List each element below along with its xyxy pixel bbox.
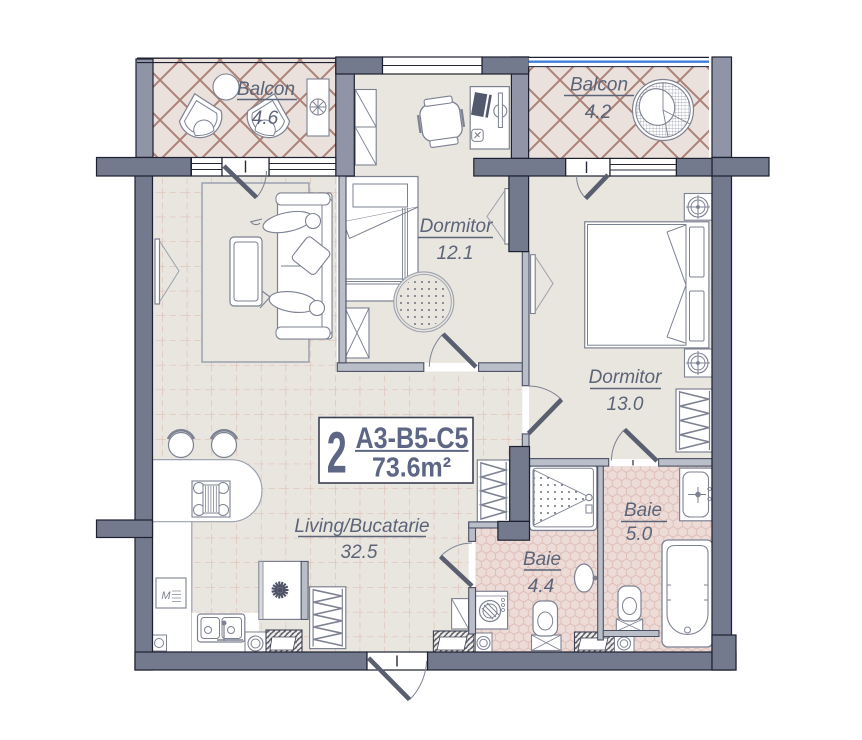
svg-text:M: M bbox=[161, 590, 171, 602]
svg-text:4.2: 4.2 bbox=[585, 102, 612, 123]
svg-text:Dormitor: Dormitor bbox=[589, 367, 663, 388]
svg-text:Baie: Baie bbox=[523, 549, 561, 570]
svg-text:Baie: Baie bbox=[624, 500, 662, 521]
svg-text:Dormitor: Dormitor bbox=[420, 216, 494, 237]
svg-text:4.6: 4.6 bbox=[252, 108, 279, 129]
svg-text:Balcon: Balcon bbox=[570, 75, 628, 96]
svg-text:4.4: 4.4 bbox=[528, 576, 554, 597]
svg-text:Balcon: Balcon bbox=[237, 79, 295, 100]
svg-text:12.1: 12.1 bbox=[437, 243, 474, 264]
svg-text:73.6m²: 73.6m² bbox=[372, 452, 451, 483]
svg-text:2: 2 bbox=[327, 421, 347, 486]
svg-text:Living/Bucatarie: Living/Bucatarie bbox=[294, 516, 429, 537]
svg-text:32.5: 32.5 bbox=[341, 542, 378, 563]
svg-text:5.0: 5.0 bbox=[626, 524, 653, 545]
svg-text:13.0: 13.0 bbox=[607, 394, 644, 415]
